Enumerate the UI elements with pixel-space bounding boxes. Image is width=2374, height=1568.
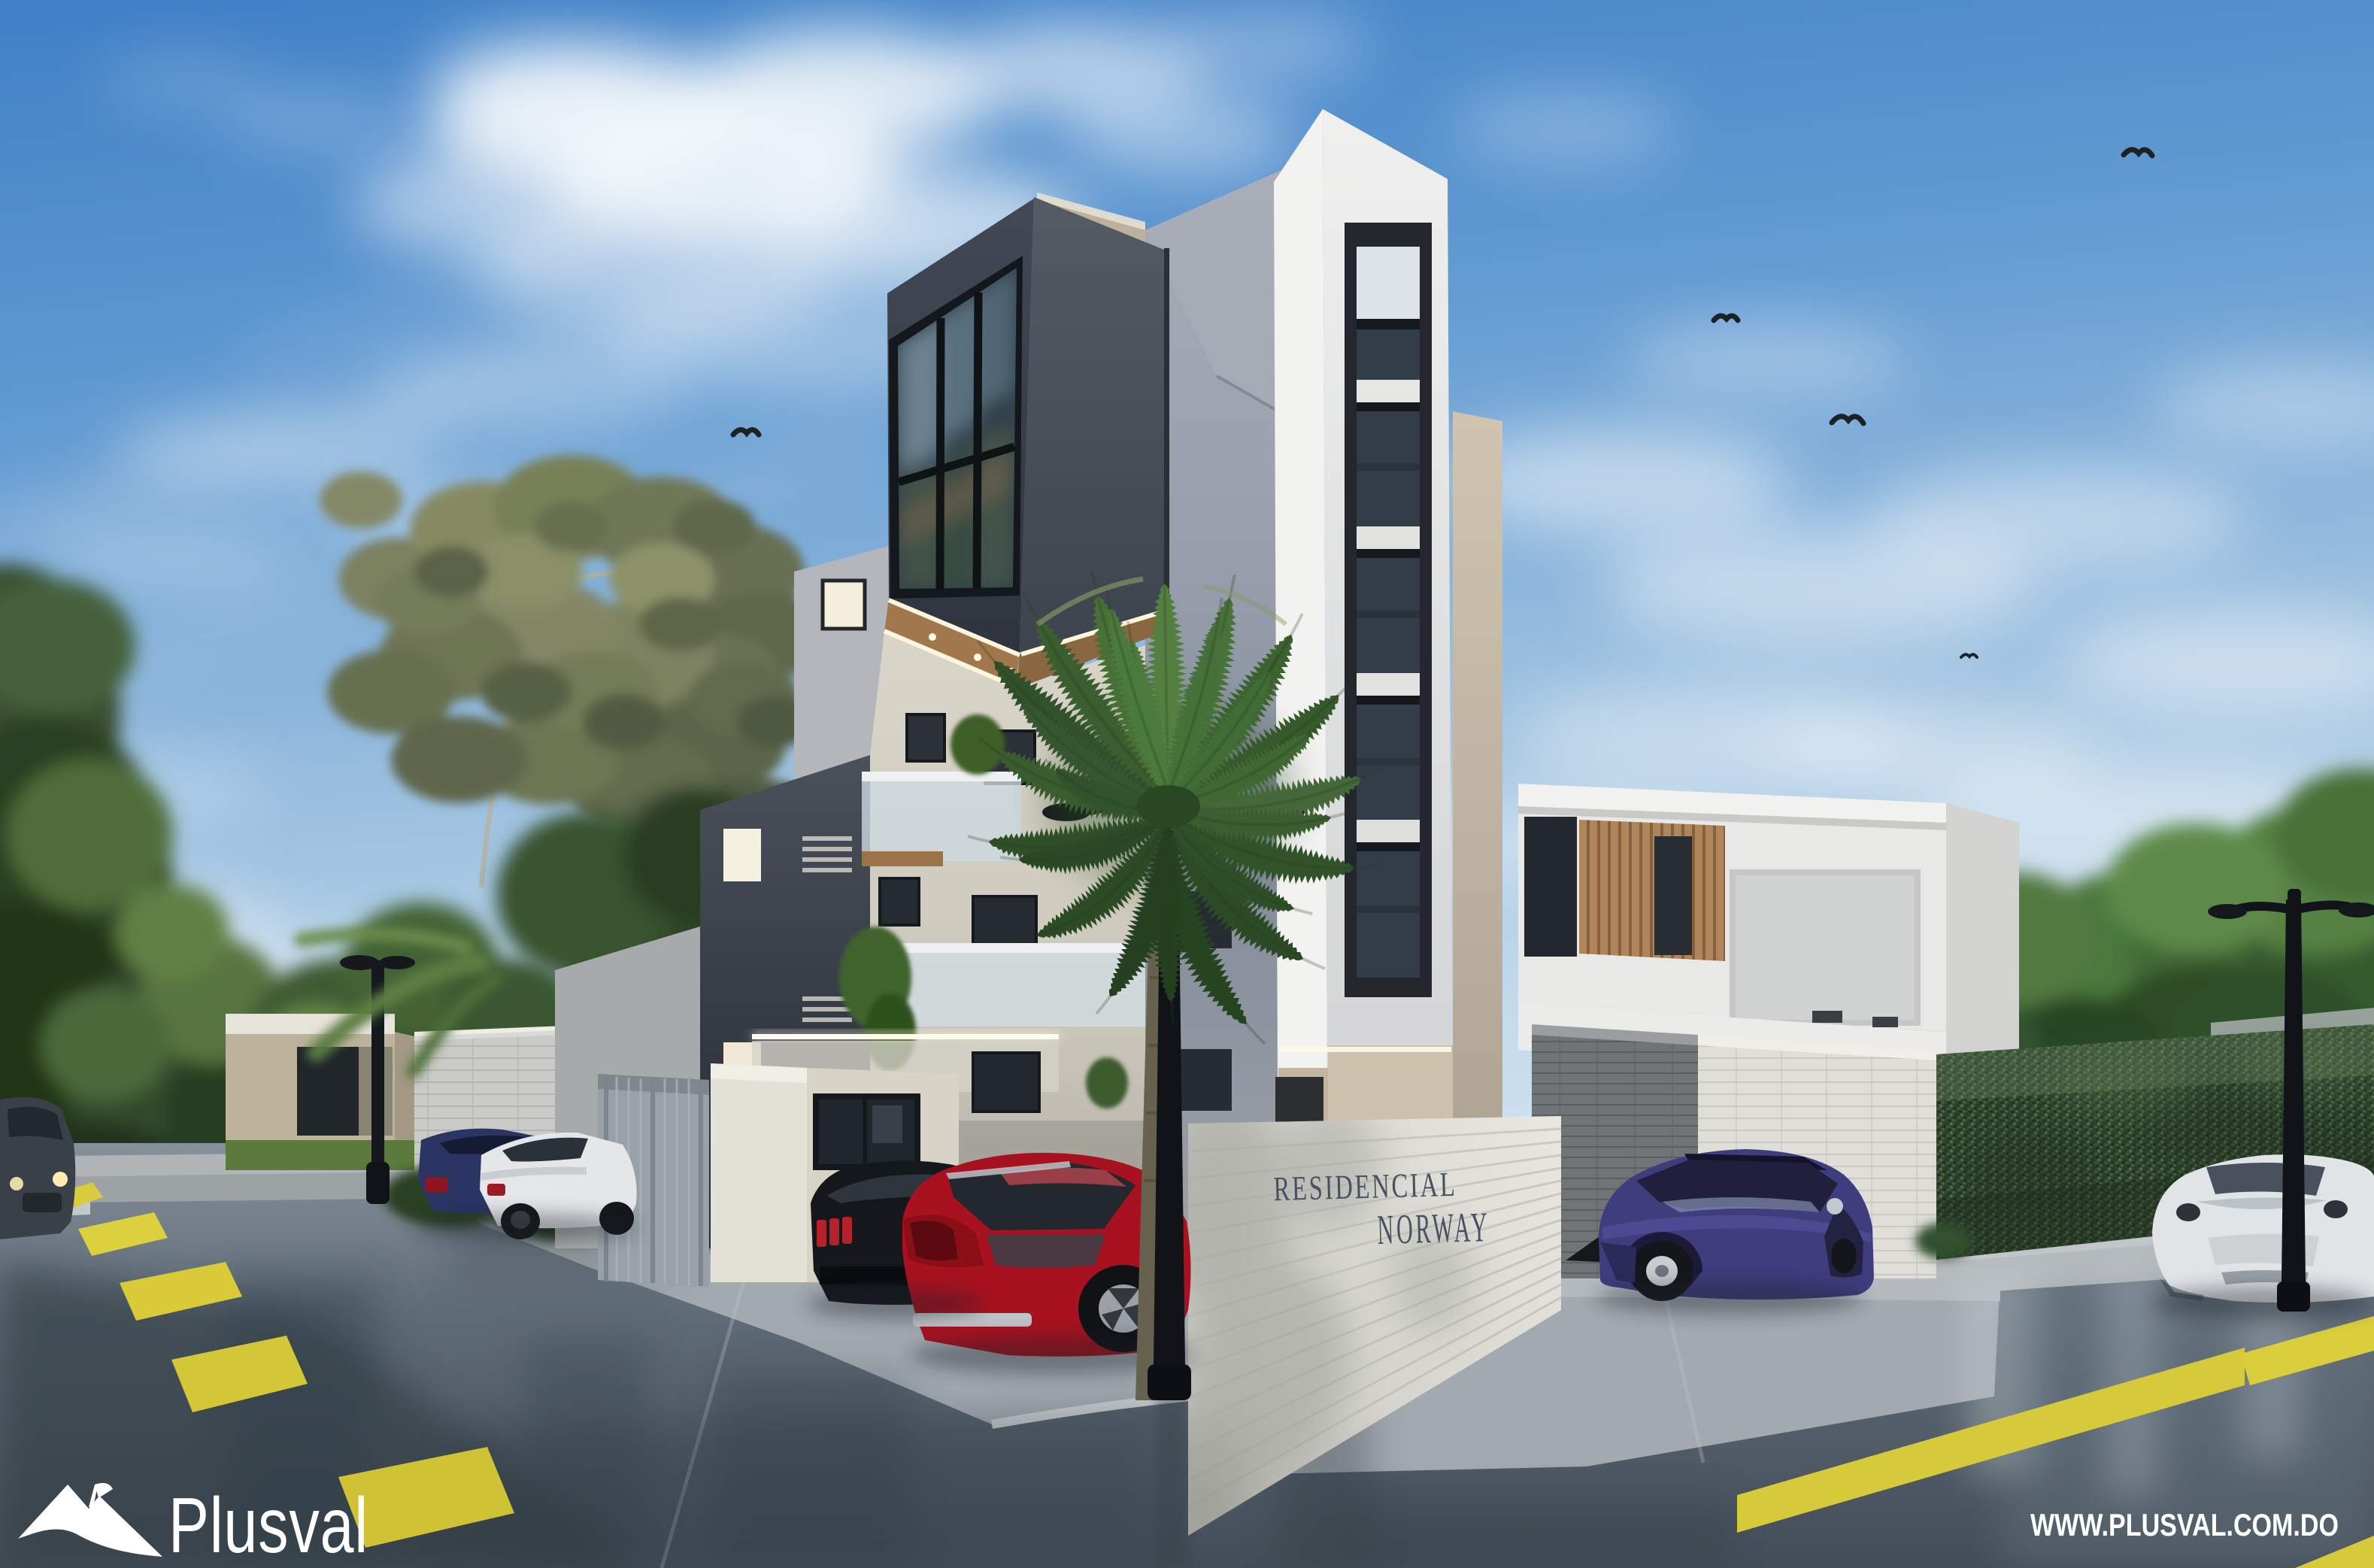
svg-text:RESIDENCIAL: RESIDENCIAL — [1273, 1165, 1457, 1208]
svg-text:NORWAY: NORWAY — [1377, 1204, 1491, 1254]
svg-text:Plusval: Plusval — [168, 1482, 368, 1568]
svg-text:WWW.PLUSVAL.COM.DO: WWW.PLUSVAL.COM.DO — [2030, 1507, 2339, 1542]
